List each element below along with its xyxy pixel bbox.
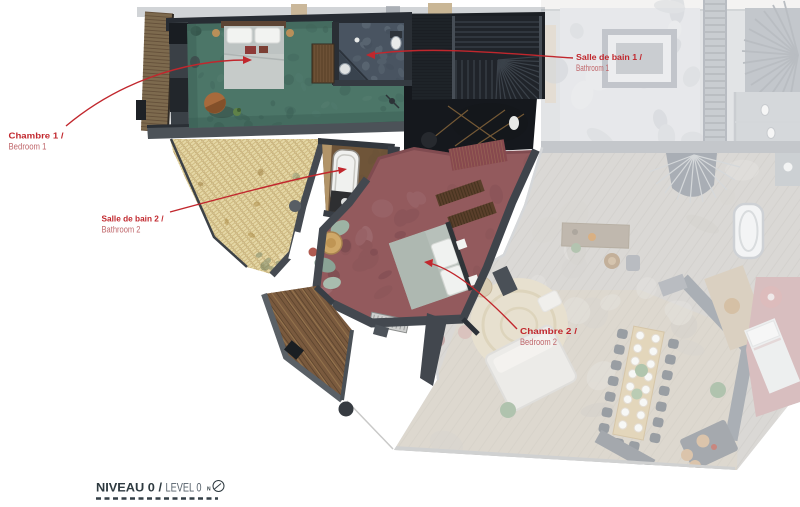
svg-text:Salle de bain 2 /: Salle de bain 2 / — [102, 214, 165, 224]
svg-text:Bathroom 2: Bathroom 2 — [102, 225, 141, 236]
svg-text:N: N — [207, 487, 211, 493]
svg-text:Bedroom 2: Bedroom 2 — [520, 337, 557, 348]
svg-text:Salle de bain 1 /: Salle de bain 1 / — [576, 52, 643, 62]
svg-text:Bedroom 1: Bedroom 1 — [9, 142, 47, 153]
svg-text:LEVEL 0: LEVEL 0 — [166, 483, 202, 495]
svg-text:Chambre 2 /: Chambre 2 / — [520, 326, 578, 336]
svg-text:NIVEAU 0 /: NIVEAU 0 / — [96, 481, 163, 495]
svg-text:Chambre 1 /: Chambre 1 / — [9, 131, 65, 141]
svg-text:Bathroom 1: Bathroom 1 — [576, 63, 609, 74]
